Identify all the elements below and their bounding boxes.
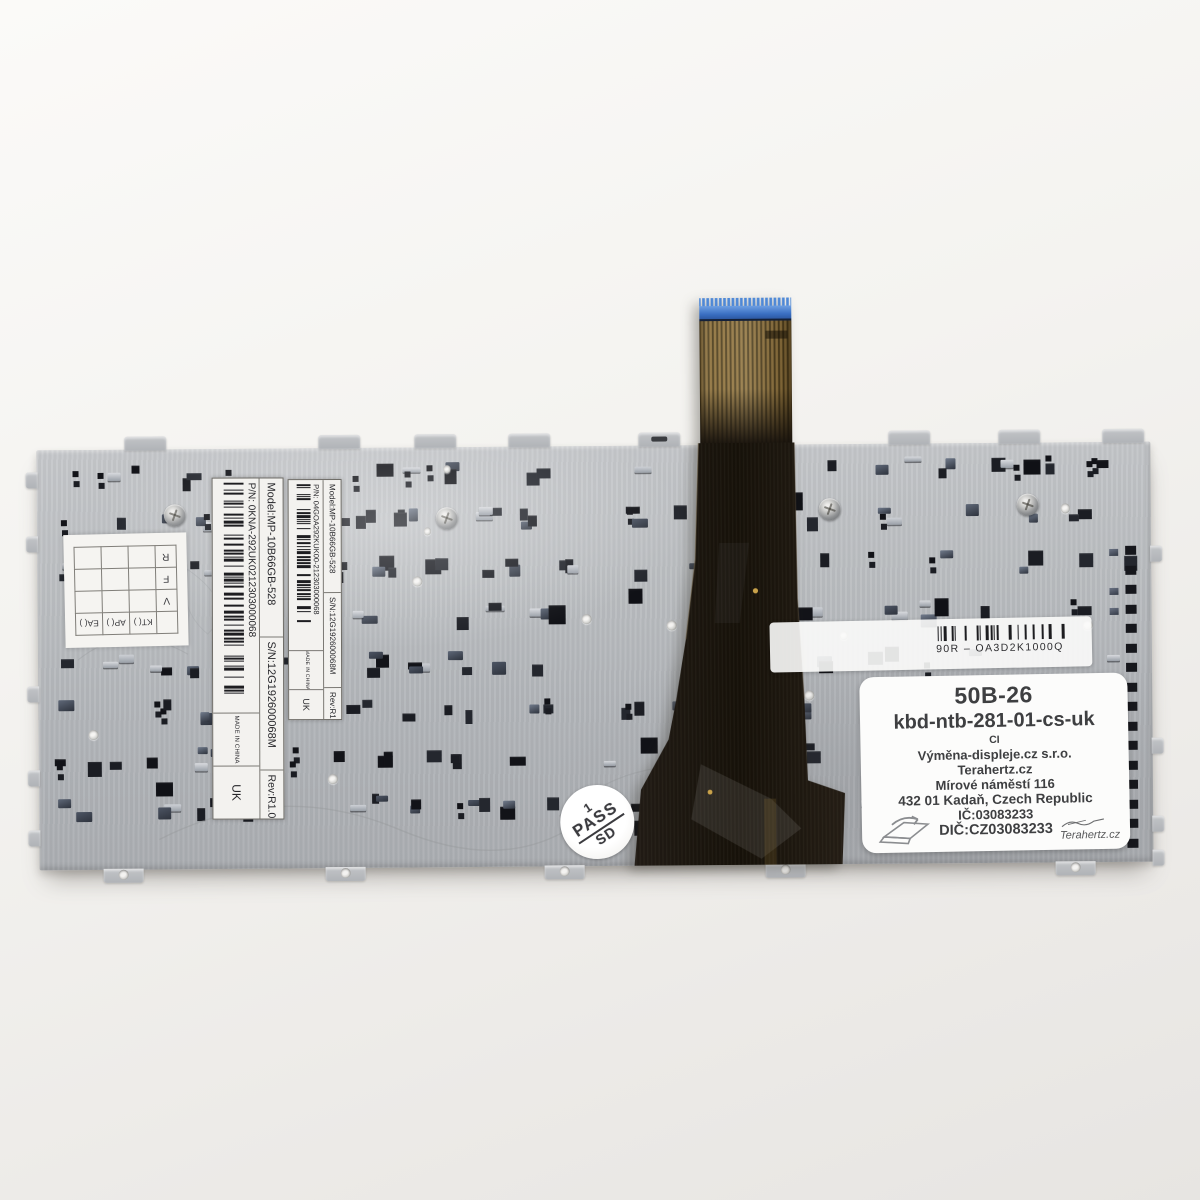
plate-clip: [394, 512, 407, 527]
plate-clip: [1072, 609, 1078, 615]
plate-clip: [225, 469, 231, 475]
made-in-label: MADE IN CHINA: [213, 714, 259, 767]
plate-clip: [868, 551, 874, 557]
part-number: P/N: 04GOA292KUK00-212303000068: [312, 484, 321, 615]
plate-clip: [191, 561, 200, 569]
plate-clip: [350, 805, 366, 811]
plate-clip: [884, 605, 897, 615]
rivet-hole: [1061, 503, 1071, 513]
plate-clip: [77, 812, 93, 822]
plate-clip: [376, 464, 393, 477]
tab-hole: [119, 870, 129, 880]
plate-clip: [881, 524, 887, 530]
model-number: Model:MP-10B66GB-528: [324, 480, 341, 593]
plate-clip: [1069, 515, 1079, 522]
plate-clip: [200, 712, 210, 722]
plate-clip: [544, 698, 550, 704]
plate-clip: [187, 473, 202, 480]
plate-clip: [354, 485, 360, 491]
plate-clip: [98, 482, 104, 488]
plate-clip: [60, 660, 74, 669]
mounting-tab-left: [28, 830, 40, 846]
plate-clip: [448, 651, 462, 661]
mounting-tab-top: [1102, 429, 1144, 443]
plate-clip: [450, 754, 459, 763]
mounting-tab-top: [414, 434, 456, 448]
plate-clip: [536, 468, 551, 479]
signature: Terahertz.cz: [1060, 817, 1121, 842]
plate-clip: [58, 799, 71, 808]
screw: [436, 507, 458, 529]
plate-clip: [529, 705, 539, 713]
plate-clip: [150, 666, 162, 672]
made-in-label: MADE IN CHINA: [289, 651, 323, 690]
mounting-tab-top: [124, 436, 166, 450]
plate-clip: [905, 456, 922, 462]
rivet-hole: [582, 614, 593, 625]
plate-clip: [1077, 606, 1091, 615]
plate-clip: [388, 567, 397, 578]
qc-letter: R: [155, 545, 176, 567]
plate-clip: [119, 655, 134, 663]
plate-clip: [492, 662, 506, 675]
plate-clip: [1126, 604, 1137, 613]
plate-clip: [545, 708, 551, 714]
plate-clip: [362, 615, 378, 624]
plate-clip: [402, 713, 415, 721]
plate-clip: [934, 599, 949, 617]
plate-clip: [373, 567, 386, 577]
plate-clip: [58, 700, 74, 711]
plate-clip: [479, 798, 491, 812]
plate-clip: [195, 763, 208, 771]
keyboard-assembly: 305A300600UP4 L1 D1: [0, 0, 1200, 1200]
plate-clip: [869, 561, 875, 567]
plate-clip: [333, 751, 345, 762]
plate-clip: [154, 701, 160, 707]
plate-clip: [1126, 643, 1137, 652]
revision: Rev:R1.0: [260, 770, 283, 818]
plate-clip: [162, 719, 168, 725]
mounting-tab-left: [27, 686, 39, 702]
mounting-tab-top: [888, 430, 930, 444]
serial-number: S/N:12G192600068M: [260, 637, 283, 770]
mounting-tab-left: [26, 472, 38, 488]
plate-clip: [510, 756, 526, 766]
plate-clip: [74, 481, 80, 487]
oem-barcode: [934, 624, 1066, 642]
plate-clip: [1110, 607, 1119, 614]
part-number-barcode: [224, 483, 245, 697]
plate-clip: [488, 603, 502, 611]
plate-clip: [966, 504, 979, 516]
plate-clip: [1096, 460, 1108, 468]
plate-clip: [930, 567, 936, 573]
model-sticker-large: Model:MP-10B66GB-528 S/N:12G192600068M R…: [212, 477, 285, 819]
plate-clip: [198, 747, 208, 754]
plate-clip: [567, 565, 578, 574]
plate-clip: [462, 667, 472, 675]
oem-barcode-strip: 90R – OA3D2K1000Q: [769, 616, 1092, 672]
plate-clip: [426, 750, 442, 763]
plate-clip: [73, 471, 79, 477]
plate-clip: [1078, 509, 1092, 519]
plate-clip: [1126, 624, 1137, 633]
plate-clip: [1079, 553, 1093, 567]
plate-clip: [1014, 465, 1020, 471]
mounting-tab-right: [1152, 738, 1164, 754]
screw: [164, 504, 186, 526]
qc-letter: F: [155, 567, 176, 589]
rivet-hole: [424, 527, 432, 535]
plate-clip: [980, 606, 989, 619]
plate-clip: [352, 610, 363, 617]
plate-clip: [1000, 460, 1013, 469]
tab-hole: [560, 866, 570, 876]
market-code: UK: [213, 767, 259, 819]
plate-clip: [204, 514, 210, 520]
mounting-tab-left: [28, 770, 40, 786]
plate-clip: [877, 508, 891, 514]
rivet-hole: [88, 730, 98, 740]
plate-clip: [1070, 599, 1076, 605]
serial-number: S/N:12G192600068M: [324, 593, 341, 688]
plate-clip: [457, 803, 463, 809]
plate-clip: [205, 524, 211, 530]
plate-clip: [1126, 702, 1137, 711]
mounting-tab-right: [1150, 546, 1162, 562]
rivet-hole: [328, 774, 339, 785]
plate-clip: [940, 550, 954, 558]
plate-clip: [503, 800, 515, 808]
tab-hole: [1071, 862, 1081, 872]
tab-hole: [341, 868, 351, 878]
plate-clip: [57, 774, 63, 780]
plate-clip: [1125, 565, 1136, 574]
plate-clip: [458, 813, 464, 819]
rivet-hole: [412, 576, 423, 587]
rivet-hole: [443, 465, 451, 473]
plate-clip: [547, 797, 559, 811]
plate-clip: [110, 762, 122, 770]
model-sticker-small: Model:MP-10B66GB-528 S/N:12G192600068M R…: [288, 479, 343, 720]
plate-clip: [411, 799, 421, 809]
plate-clip: [163, 700, 171, 711]
solder-dot: [753, 588, 758, 593]
plate-clip: [290, 761, 296, 767]
signature-squiggle: [1060, 817, 1106, 830]
seller-sticker: 50B-26 kbd-ntb-281-01-cs-uk CI Výměna-di…: [859, 672, 1130, 853]
plate-clip: [97, 472, 103, 478]
plate-clip: [367, 668, 380, 678]
plate-clip: [108, 473, 121, 481]
plate-clip: [939, 468, 946, 478]
plate-clip: [409, 509, 418, 522]
plate-clip: [520, 508, 528, 520]
part-number-barcode: [297, 484, 311, 636]
part-number: P/N: 0KNA-292UK0212303000068: [246, 483, 257, 638]
qc-check: AP( ): [102, 612, 129, 635]
plate-clip: [479, 507, 493, 515]
plate-clip: [362, 699, 372, 708]
plate-clip: [875, 464, 888, 475]
plate-clip: [427, 465, 433, 471]
plate-clip: [102, 661, 118, 667]
pass-stamp: 1 PASS SD: [560, 785, 635, 860]
plate-clip: [293, 747, 299, 753]
plate-clip: [366, 510, 376, 522]
plate-clip: [1126, 682, 1137, 691]
plate-clip: [887, 518, 902, 525]
market-code: UK: [289, 690, 323, 719]
plate-clip: [457, 617, 469, 630]
plate-clip: [88, 762, 102, 777]
plate-clip: [880, 514, 886, 520]
plate-clip: [1093, 468, 1099, 474]
model-number: Model:MP-10B66GB-528: [260, 478, 283, 637]
plate-clip: [444, 705, 452, 715]
qc-letter: V: [156, 589, 177, 611]
plate-clip: [1015, 475, 1021, 481]
oem-part-code: 90R – OA3D2K1000Q: [936, 641, 1064, 656]
plate-clip: [428, 475, 434, 481]
plate-clip: [1019, 566, 1028, 574]
mounting-tab-left: [26, 536, 38, 552]
plate-clip: [409, 666, 423, 674]
laptop-sketch-icon: [870, 806, 933, 849]
plate-clip: [1045, 464, 1054, 475]
plate-clip: [549, 605, 566, 624]
plate-clip: [384, 752, 393, 767]
plate-clip: [1086, 461, 1092, 467]
plate-clip: [1028, 550, 1043, 565]
plate-clip: [532, 665, 543, 677]
plate-clip: [1125, 546, 1136, 555]
revision: Rev:R1.0: [324, 688, 341, 719]
plate-clip: [1023, 460, 1040, 475]
seller-code: 50B-26: [859, 679, 1127, 711]
mounting-tab-top: [508, 433, 550, 447]
plate-clip: [56, 764, 62, 770]
plate-clip: [405, 472, 411, 478]
plate-clip: [346, 705, 360, 714]
plate-clip: [465, 710, 472, 724]
mounting-tab-right: [1153, 850, 1165, 866]
plate-clip: [156, 782, 174, 796]
seller-product-code: kbd-ntb-281-01-cs-uk: [860, 707, 1128, 735]
plate-clip: [1087, 471, 1093, 477]
screw: [1017, 494, 1039, 516]
keyboard-backplate-photo: 305A300600UP4 L1 D1: [0, 0, 1200, 1200]
plate-clip: [158, 808, 172, 820]
plate-clip: [291, 771, 297, 777]
plate-clip: [946, 458, 956, 469]
plate-clip: [506, 559, 518, 567]
plate-clip: [60, 520, 66, 526]
plate-clip: [528, 515, 537, 526]
plate-clip: [197, 808, 205, 822]
qc-grid-sticker: KT( ) AP( ) EA( ) V F R: [63, 532, 188, 648]
solder-dot: [708, 790, 713, 795]
plate-clip: [929, 557, 935, 563]
mounting-tab-top: [318, 435, 360, 449]
mounting-tab-right: [1152, 816, 1164, 832]
plate-clip: [131, 466, 140, 474]
plate-clip: [376, 795, 388, 801]
qc-check: KT( ): [129, 612, 156, 635]
mounting-tab-top: [998, 430, 1040, 444]
plate-clip: [369, 651, 383, 659]
plate-clip: [161, 668, 172, 676]
plate-clip: [117, 517, 126, 529]
plate-clip: [1109, 549, 1118, 556]
plate-clip: [1045, 455, 1051, 461]
plate-clip: [190, 668, 199, 679]
plate-clip: [1125, 585, 1136, 594]
plate-clip: [435, 558, 449, 570]
plate-clip: [482, 569, 495, 578]
plate-clip: [353, 475, 359, 481]
plate-clip: [356, 516, 366, 529]
plate-clip: [1126, 663, 1137, 672]
qc-check: EA( ): [75, 613, 102, 636]
plate-clip: [406, 482, 412, 488]
plate-clip: [920, 601, 931, 606]
plate-clip: [1109, 588, 1118, 595]
plate-clip: [1107, 655, 1120, 662]
ribbon-cable: [597, 292, 862, 874]
plate-clip: [147, 757, 158, 769]
plate-clip-pattern: [36, 442, 1150, 451]
